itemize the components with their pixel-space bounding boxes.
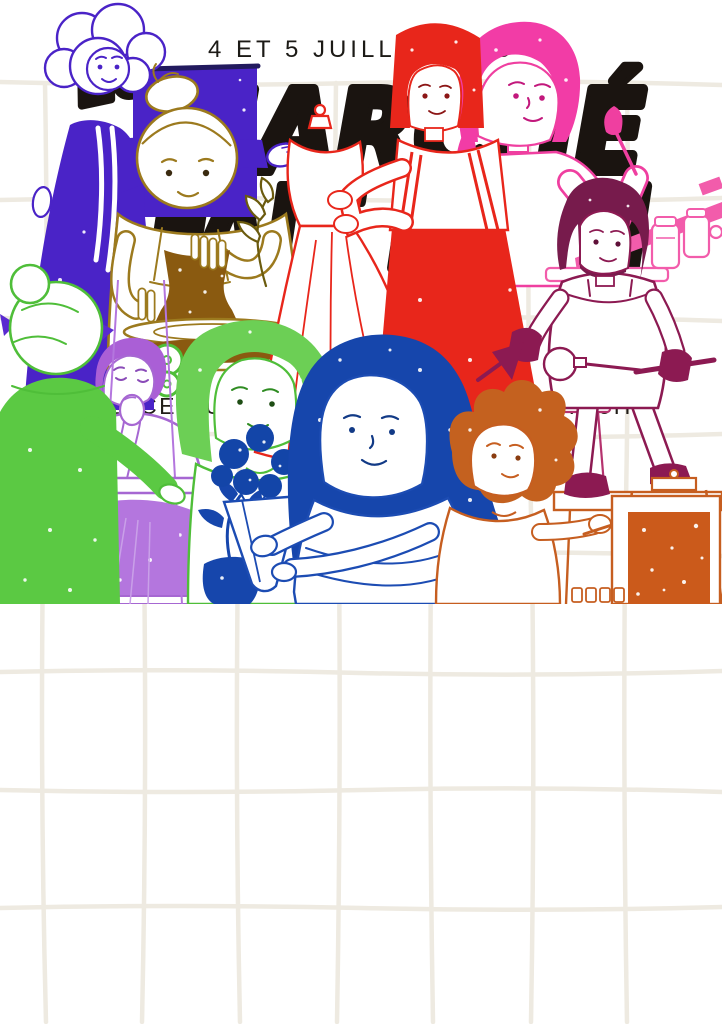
paint-tubes (572, 588, 624, 602)
poster: 4 ET 5 JUILLET 2025 Le MARCHÉ FAIT MAIN … (0, 0, 722, 1024)
illustration-scene (0, 0, 722, 604)
paintbrush-pink (614, 128, 636, 174)
orange-easel-canvas (612, 470, 722, 604)
glass-bulb (544, 348, 576, 380)
